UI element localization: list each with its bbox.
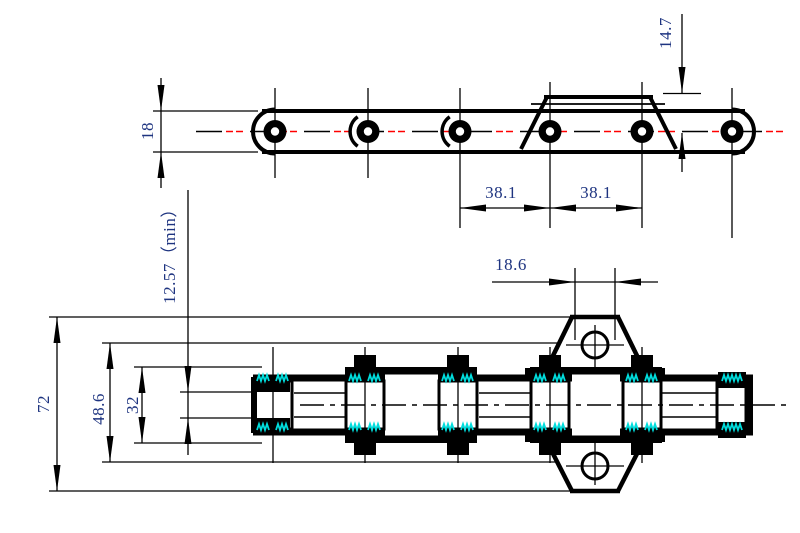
engineering-drawing: 18 14.7 38.1 38.1 12.57（min） 18.6 72 48.… xyxy=(0,0,800,533)
top-view xyxy=(153,14,790,238)
dim-18-lines xyxy=(153,78,258,188)
dim-label-inner-width-min: 12.57（min） xyxy=(161,187,179,317)
dim-label-pitch-a: 38.1 xyxy=(476,184,526,202)
dim-label-hole-offset: 18.6 xyxy=(486,256,536,274)
dim-label-plate-height: 18 xyxy=(139,116,157,146)
chain-plan-view xyxy=(251,347,788,463)
dim-label-pitch-b: 38.1 xyxy=(571,184,621,202)
pin-centerlines-top-view xyxy=(275,82,732,238)
dim-label-overall-width: 72 xyxy=(35,389,53,419)
drawing-linework xyxy=(0,0,800,533)
roller-hatching xyxy=(257,375,742,430)
dim-72-lines xyxy=(54,317,61,491)
dim-18-6-lines xyxy=(492,268,658,340)
dim-label-pin-width: 48.6 xyxy=(90,386,108,432)
dim-38-1-lines xyxy=(460,205,642,212)
dim-12-57-lines xyxy=(185,190,192,455)
dim-label-attachment-height: 14.7 xyxy=(657,10,675,56)
dim-label-inner-plate-width: 32 xyxy=(124,390,142,420)
